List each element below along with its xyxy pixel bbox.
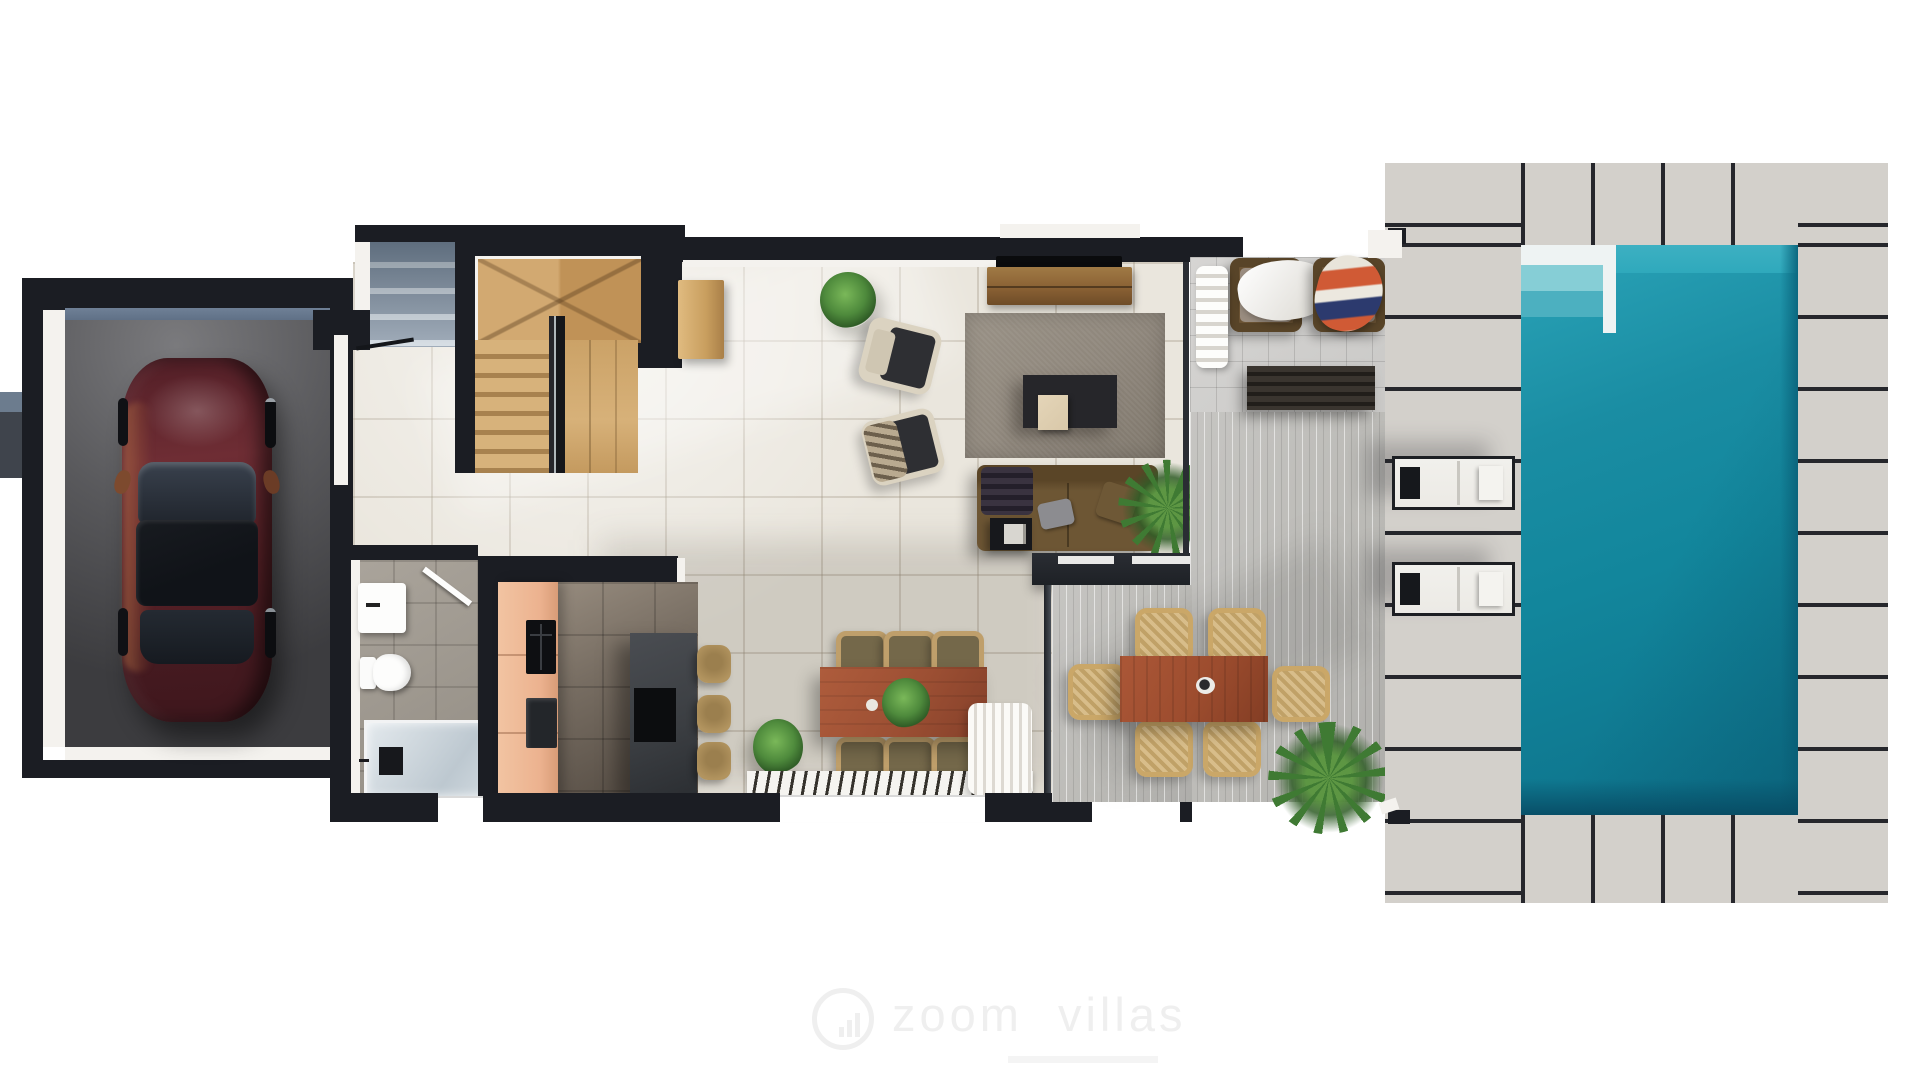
watermark-logo-icon [812,988,874,1050]
sliding-door-frame [1044,585,1051,795]
bar-chart-icon [839,1013,860,1037]
book [1004,524,1026,544]
entry-hall-wall [334,335,348,485]
wall-top-sill [683,260,1003,267]
pool-deck-north [1521,163,1798,248]
shower-drain [379,747,403,775]
tv-console-seam [987,286,1132,288]
bar-stool-1 [697,645,731,683]
shower-head [359,759,369,762]
window-bathroom [438,796,483,822]
entrance-wall-top [355,225,457,242]
sink-vanity [358,583,406,633]
kitchen-cabinets [498,582,558,798]
pool-deck-west [1385,163,1521,903]
bathroom-wall-left [330,560,353,822]
car-rear-window [140,610,254,664]
car-wheel-front-right [265,398,276,448]
bar-stool-2 [697,695,731,733]
hall-sideboard [678,280,724,359]
sofa-chaise-throw [981,467,1033,515]
watermark: zoom villas [812,980,1186,1050]
centerpiece-bowl [866,699,878,711]
toilet [360,653,414,693]
lounger-back-gap [1400,573,1420,605]
table-bowl [1196,677,1215,694]
wall-bottom-1 [330,793,438,822]
swimming-pool [1521,245,1798,815]
tray-2 [1132,556,1192,564]
side-table [990,518,1032,550]
lounger-pillow [1479,466,1503,500]
entrance-steps-shade [370,242,455,347]
car-wheel-front-left [118,398,128,446]
sofa-pillow-gray [1037,498,1076,531]
entrance-steps [370,242,455,347]
sliding-glass-door-south [780,795,985,822]
porch-slatted-table [1247,366,1375,410]
garage-wall-top [22,278,370,310]
car-hood-shine [144,374,250,448]
car-wheel-rear-left [118,608,128,656]
tv-console [987,267,1132,305]
kitchen-wall-top [478,556,678,582]
pool-deck-east [1798,163,1888,903]
plank-line2 [615,340,617,473]
outdoor-chair-bottom-1 [1135,721,1193,777]
lounger-seam [1457,461,1460,505]
sheepskin-rug [968,703,1032,795]
glass-wall-living [1183,262,1189,555]
wall-bottom-2 [483,793,780,822]
watermark-subtext [1008,1056,1158,1063]
kitchen-wall-left [478,582,498,800]
pool-diag-depth [1521,245,1798,815]
toilet-bowl [373,654,411,691]
fringe-hanging-rug [1196,266,1228,368]
garage-side-stub [0,412,22,478]
staircase-flight-right [565,340,638,473]
potted-plant-living [820,272,876,328]
floorplan: zoom villas [0,0,1920,1080]
garage-lining-bottom [65,747,330,761]
bathroom-wall-top [330,545,478,560]
lounger-back-gap [1400,467,1420,499]
garage-side-stub-roof [0,392,22,412]
wall-above-tv [1000,224,1140,238]
outdoor-dining-table [1120,656,1268,722]
pool-deck-south [1521,813,1798,903]
table-centerpiece-plant [882,678,930,728]
car-wheel-rear-right [265,608,276,658]
lounger-seam [1457,567,1460,611]
outdoor-chair-bottom-2 [1203,721,1261,777]
staircase-railing [549,316,565,473]
car-sunroof [136,520,258,606]
bar-stool-3 [697,742,731,780]
outdoor-chair-left [1068,664,1126,720]
lounger-pillow [1479,572,1503,606]
porch-pillar [1368,230,1402,258]
kitchen-wall-cap [677,558,685,582]
stair-wall-right [635,237,682,368]
deck-post-south [1388,810,1410,824]
outdoor-chair-right [1272,666,1330,722]
sun-lounger-1 [1392,456,1515,510]
kitchen-island [630,633,697,793]
car [122,358,272,722]
cooktop [526,620,556,674]
garage-lining-left [43,310,65,747]
sun-lounger-2 [1392,562,1515,616]
kitchen-sink-unit [526,698,557,748]
stair-wall-left [455,262,475,473]
potted-plant-kitchen [753,719,803,775]
garage-wall-bottom [22,760,353,778]
shower [364,720,489,799]
garage-wall-left [22,278,43,778]
plank-line [589,340,591,473]
island-front-panel [634,688,676,742]
faucet [366,603,380,607]
wall-top [683,237,1243,262]
burner-line2 [540,624,542,670]
staircase-flight-left [475,340,549,473]
coffee-table-wood-box [1038,395,1068,430]
car-windshield [138,462,256,524]
tray-1 [1058,556,1114,564]
watermark-text: zoom villas [892,980,1186,1050]
